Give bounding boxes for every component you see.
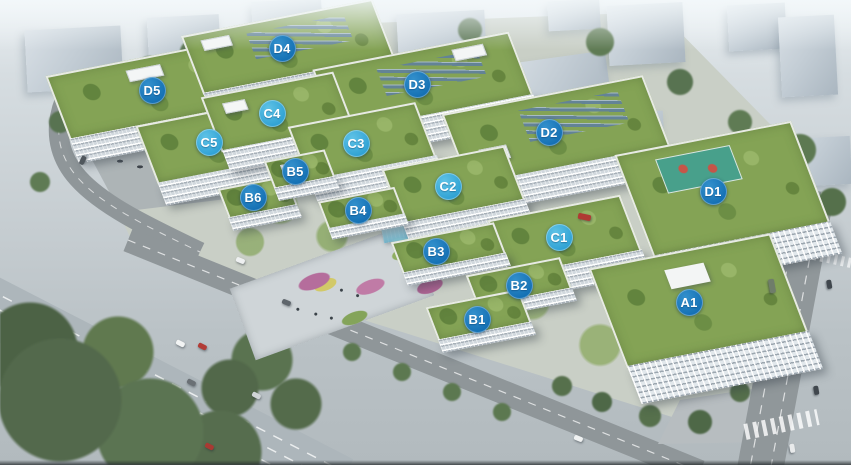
- building-marker-b1: B1: [464, 306, 491, 333]
- building-marker-c2: C2: [435, 173, 462, 200]
- building-marker-d2: D2: [536, 119, 563, 146]
- building-marker-c3: C3: [343, 130, 370, 157]
- aerial-rendering: A1B1B2B3B4B5B6C1C2C3C4C5D1D2D3D4D5: [0, 0, 851, 465]
- building-marker-b2: B2: [506, 272, 533, 299]
- building-marker-d3: D3: [404, 71, 431, 98]
- building-markers-layer: A1B1B2B3B4B5B6C1C2C3C4C5D1D2D3D4D5: [0, 0, 851, 465]
- building-marker-c1: C1: [546, 224, 573, 251]
- building-marker-c5: C5: [196, 129, 223, 156]
- building-marker-b4: B4: [345, 197, 372, 224]
- building-marker-d1: D1: [700, 178, 727, 205]
- building-marker-b3: B3: [423, 238, 450, 265]
- building-marker-d5: D5: [139, 77, 166, 104]
- building-marker-b5: B5: [282, 158, 309, 185]
- building-marker-c4: C4: [259, 100, 286, 127]
- building-marker-d4: D4: [269, 35, 296, 62]
- building-marker-a1: A1: [676, 289, 703, 316]
- building-marker-b6: B6: [240, 184, 267, 211]
